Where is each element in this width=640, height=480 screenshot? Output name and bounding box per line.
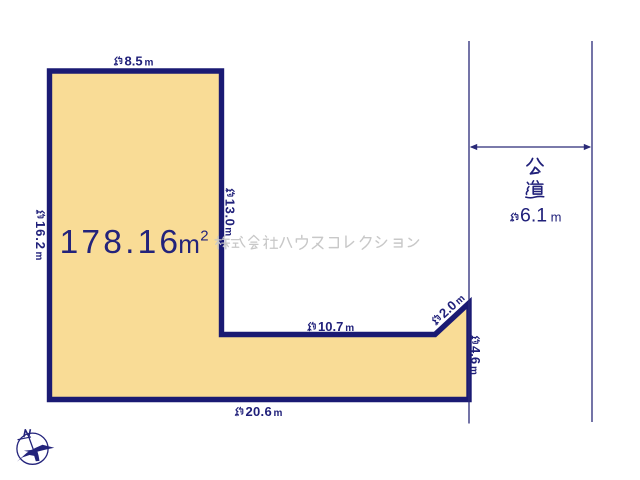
svg-text:m: m	[468, 366, 479, 375]
svg-text:178.16: 178.16	[60, 224, 182, 261]
svg-text:m: m	[178, 229, 200, 259]
svg-text:m: m	[551, 210, 562, 225]
svg-text:m: m	[274, 408, 283, 419]
svg-text:8.5: 8.5	[125, 54, 143, 69]
svg-text:m: m	[345, 323, 354, 334]
svg-text:m: m	[145, 58, 154, 69]
svg-text:m: m	[223, 227, 234, 236]
svg-text:6.1: 6.1	[520, 205, 547, 227]
svg-text:20.6: 20.6	[246, 404, 273, 419]
svg-text:10.7: 10.7	[318, 319, 343, 334]
svg-text:2: 2	[200, 228, 208, 245]
svg-text:13.0: 13.0	[223, 199, 238, 227]
svg-text:4.6: 4.6	[468, 346, 483, 364]
svg-text:16.2: 16.2	[33, 221, 48, 250]
svg-text:m: m	[33, 252, 44, 261]
